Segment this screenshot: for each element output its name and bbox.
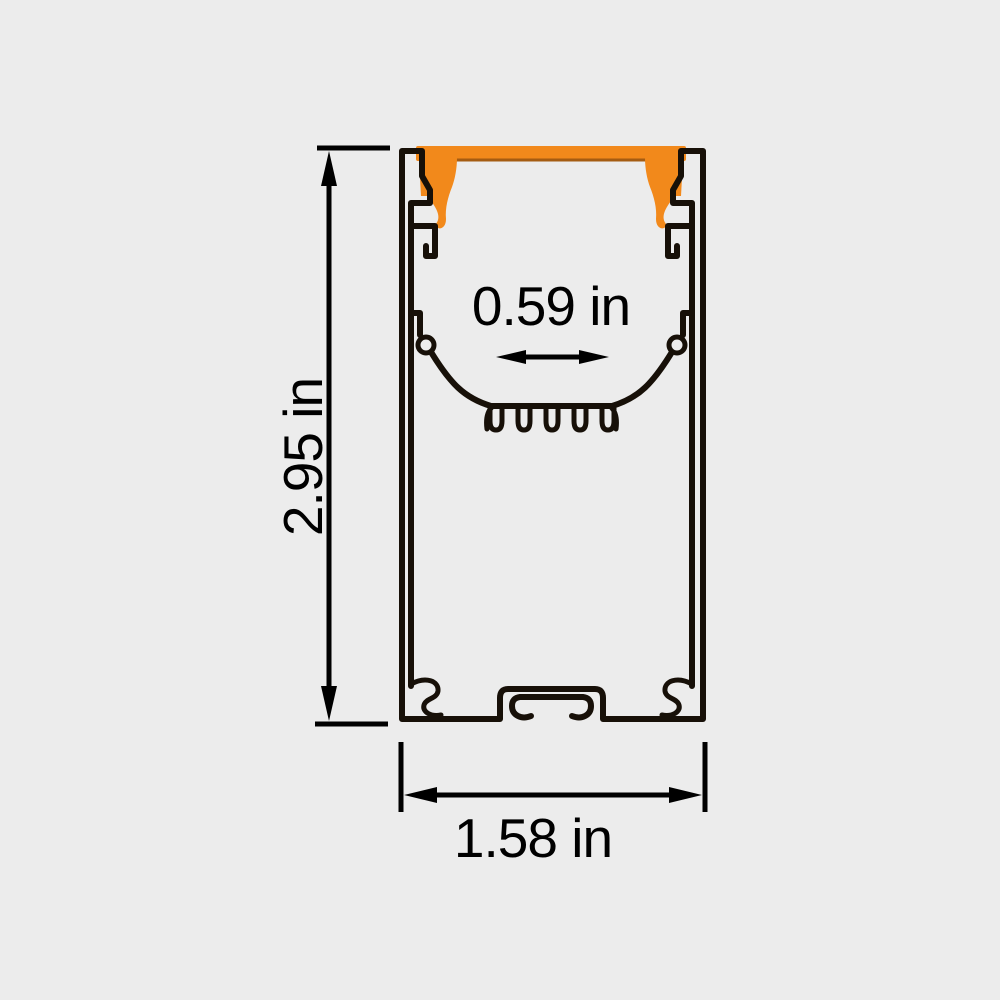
mounting-slot-inner xyxy=(512,697,591,717)
profile-left-clip-hook xyxy=(411,226,435,256)
led-tray-curve xyxy=(431,352,672,406)
diagram-canvas: 2.95 in 1.58 in 0.59 in xyxy=(0,0,1000,1000)
diffuser-cover xyxy=(416,146,686,228)
bottom-left-spring-hook xyxy=(411,680,441,715)
width-dimension-label: 1.58 in xyxy=(454,807,612,869)
profile-cross-section-diagram: 2.95 in 1.58 in 0.59 in xyxy=(0,0,1000,1000)
height-dimension-label: 2.95 in xyxy=(272,378,334,536)
height-arrowhead-down-icon xyxy=(321,686,337,721)
inner-width-label: 0.59 in xyxy=(472,275,630,337)
profile-left-inner-wall xyxy=(411,151,430,686)
height-arrowhead-up-icon xyxy=(321,151,337,186)
width-dimension: 1.58 in xyxy=(401,742,705,869)
inner-width-arrowhead-left-icon xyxy=(496,350,526,364)
profile-outer-contour xyxy=(402,151,703,719)
heatsink-teeth xyxy=(487,407,617,430)
width-arrowhead-right-icon xyxy=(669,787,702,803)
profile-right-inner-wall xyxy=(673,151,692,686)
inner-width-arrowhead-right-icon xyxy=(579,350,609,364)
width-arrowhead-left-icon xyxy=(404,787,437,803)
profile-right-clip-hook xyxy=(668,226,692,256)
bottom-right-spring-hook xyxy=(662,680,692,715)
height-dimension: 2.95 in xyxy=(272,148,390,724)
inner-width-dimension: 0.59 in xyxy=(472,275,630,364)
aluminum-profile-outline xyxy=(402,151,703,719)
